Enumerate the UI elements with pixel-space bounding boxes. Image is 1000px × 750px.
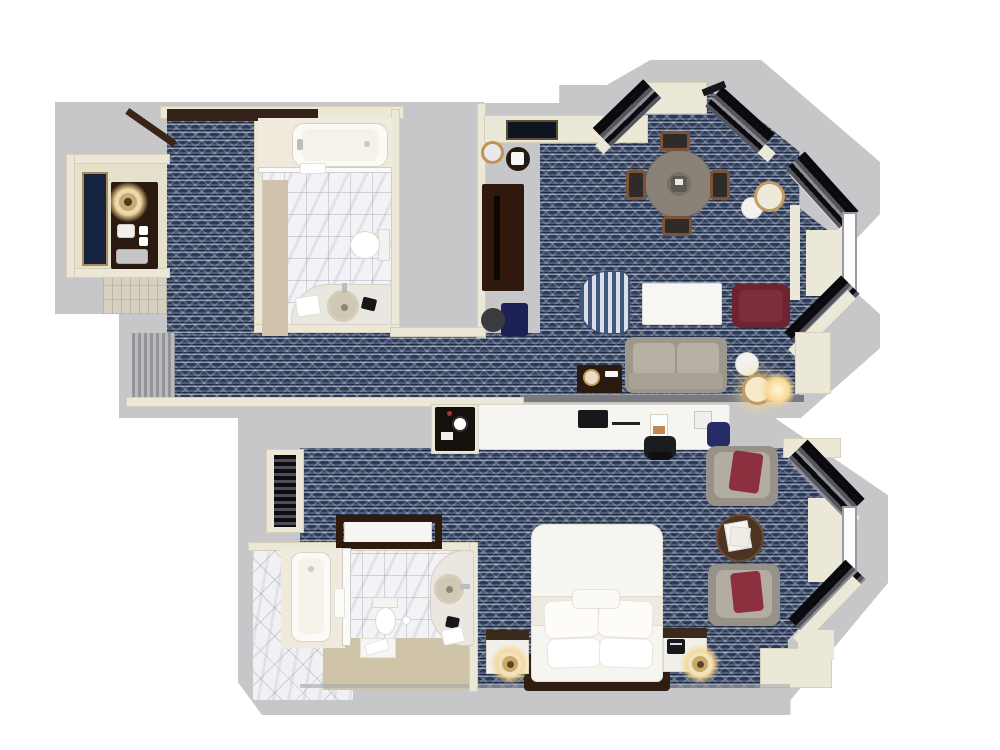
dining-chair-north [660, 131, 690, 151]
entry-coffee-cup-1 [139, 226, 148, 235]
bathroom2-sink-faucet [460, 584, 470, 589]
bathroom2-towel-on-rail [334, 588, 345, 618]
suite-floor-plan [0, 0, 1000, 750]
nook-wall-bottom [66, 268, 170, 278]
living-waste-bin [501, 303, 528, 336]
entry-coffee-cup-2 [139, 237, 148, 246]
coffee-ottoman-white [642, 283, 722, 325]
nightstand-radio [667, 639, 685, 654]
desk-laptop [578, 410, 608, 428]
nightstand-left-top [486, 630, 529, 640]
bed-accent-pillow [572, 589, 620, 609]
bedroom-armchair-bottom-pillow [730, 571, 764, 614]
bedroom-table-book-2 [729, 526, 751, 548]
entry-tile-floor [103, 276, 167, 314]
bathroom2-tub-drain [308, 566, 314, 572]
bathroom1-sink-drain [341, 304, 348, 311]
sofa-cushion-right [677, 343, 719, 375]
bathroom1-sink-faucet [342, 283, 347, 293]
nook-wall-left [66, 154, 75, 278]
bathroom1-tub-faucet [297, 139, 303, 150]
nightstand-right-top [663, 628, 707, 638]
living-stool-dark [481, 308, 505, 332]
kitchenette-red-accent [447, 411, 452, 416]
corner-lamp-glow [760, 372, 796, 408]
entry-closet-louver-doors [132, 333, 175, 398]
living-se-corner-wall [795, 332, 831, 394]
bathroom2-paper-roll [402, 616, 411, 625]
bathroom2-sink-drain [446, 586, 453, 593]
side-table-white-south [735, 352, 759, 376]
dining-chair-south [662, 216, 692, 236]
chaise-striped [579, 271, 630, 334]
entry-service-tray [116, 249, 148, 264]
bedroom-armchair-top-pillow [728, 450, 763, 494]
desk-chair-back [648, 452, 672, 460]
void-wall-bottom [390, 327, 486, 337]
bathroom1-tub-drain [364, 141, 370, 147]
side-table-remote [605, 371, 618, 377]
nightstand-radio-dial [670, 643, 682, 645]
bay-east-sill-strip [790, 205, 800, 300]
bathroom1-entry-strip [262, 180, 288, 325]
bathroom1-toilet-bowl [350, 231, 380, 259]
bathroom1-towels [295, 294, 322, 317]
bed-pillow-front-right [598, 637, 653, 669]
nightstand-right-finial [697, 661, 704, 668]
nightstand-left-finial [507, 661, 514, 668]
entry-artwork [82, 172, 108, 266]
dining-chair-west [626, 170, 646, 200]
bathroom1-door-gap [262, 320, 288, 336]
entry-lamp-finial [124, 198, 132, 206]
desk-keyboard [612, 422, 640, 425]
armchair-burgundy-cushion [739, 290, 783, 322]
bathroom1-wall-right [391, 109, 400, 331]
living-tv-console-groove [494, 196, 500, 280]
corridor-band-carpet [167, 333, 547, 398]
side-table-gold-north [754, 181, 785, 212]
side-table-gold-tray [583, 369, 600, 386]
luggage-rack-frame [336, 515, 442, 549]
bedroom-se-corner-step [798, 630, 834, 660]
dining-centerpiece-top [675, 179, 683, 185]
living-round-mirror [481, 141, 504, 164]
bathroom2-toilet-bowl [375, 607, 396, 635]
living-wall-tv [506, 120, 558, 140]
sofa-front-rail [629, 373, 723, 389]
bedroom-window-shade [274, 455, 296, 527]
living-telephone [511, 152, 524, 165]
kitchenette-card [441, 432, 453, 440]
entry-coffee-kettle [117, 224, 135, 238]
desk-stool-blue [707, 422, 730, 447]
sofa-cushion-left [633, 343, 675, 375]
bathroom1-towel-on-rail [300, 163, 326, 174]
nook-wall-top [66, 154, 170, 164]
dining-chair-east [710, 170, 730, 200]
exterior-cutout-west [55, 314, 119, 418]
desk-menu-print [653, 426, 665, 434]
living-tv-console [482, 184, 524, 291]
kitchenette-coffee-machine [452, 416, 468, 432]
bed-pillow-front-left [546, 637, 601, 669]
